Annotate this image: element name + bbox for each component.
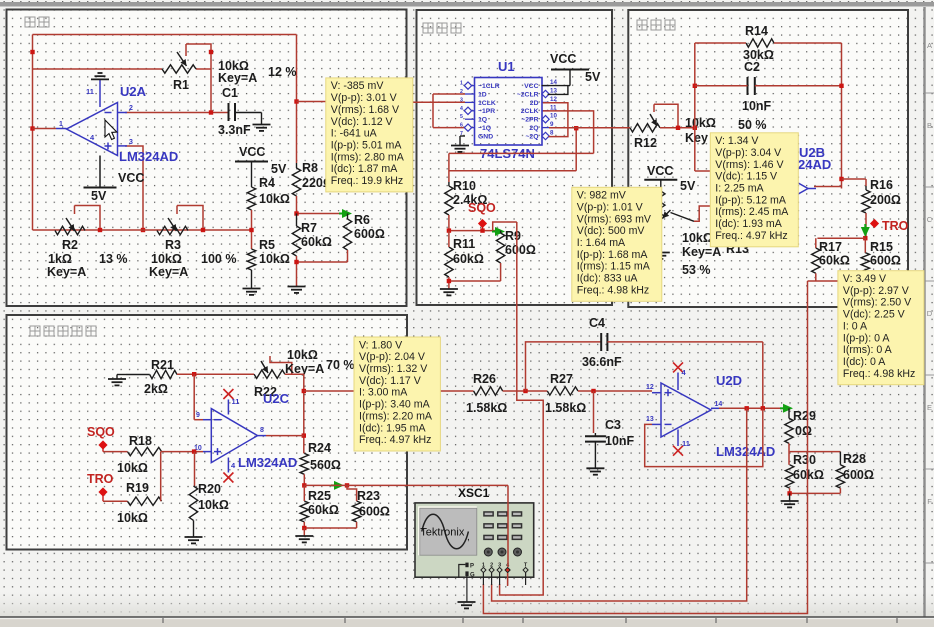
svg-text:R26: R26	[473, 372, 496, 386]
svg-text:V(rms): 693 mV: V(rms): 693 mV	[577, 213, 652, 225]
svg-text:Freq.: 4.98 kHz: Freq.: 4.98 kHz	[577, 284, 649, 296]
svg-text:XSC1: XSC1	[458, 486, 490, 500]
svg-text:1D: 1D	[478, 91, 487, 98]
svg-text:~1Q: ~1Q	[478, 125, 491, 132]
svg-text:560Ω: 560Ω	[310, 458, 341, 472]
svg-text:R28: R28	[843, 452, 866, 466]
svg-text:C4: C4	[589, 316, 605, 330]
svg-text:1.58kΩ: 1.58kΩ	[466, 401, 507, 415]
svg-text:R1: R1	[173, 78, 189, 92]
svg-text:2CLK: 2CLK	[521, 108, 539, 115]
svg-text:10kΩ: 10kΩ	[198, 498, 229, 512]
svg-text:50 %: 50 %	[738, 118, 767, 132]
svg-text:1CLK: 1CLK	[478, 100, 496, 107]
svg-text:Key=A: Key=A	[149, 265, 188, 279]
svg-text:5V: 5V	[585, 70, 601, 84]
svg-text:V(p-p): 1.01 V: V(p-p): 1.01 V	[577, 201, 644, 213]
svg-text:R3: R3	[165, 238, 181, 252]
svg-text:Freq.: 4.97 kHz: Freq.: 4.97 kHz	[715, 230, 787, 242]
svg-text:LM324AD: LM324AD	[119, 149, 178, 164]
svg-text:V(rms): 1.32 V: V(rms): 1.32 V	[359, 363, 428, 375]
svg-text:10: 10	[550, 113, 557, 120]
svg-text:36.6nF: 36.6nF	[582, 355, 622, 369]
svg-text:A: A	[927, 41, 932, 50]
svg-text:~2PR: ~2PR	[521, 117, 538, 124]
svg-text:I(dc): 833 uA: I(dc): 833 uA	[577, 273, 639, 285]
svg-text:10kΩ: 10kΩ	[287, 348, 318, 362]
svg-text:U2C: U2C	[263, 391, 290, 406]
svg-text:0Ω: 0Ω	[795, 424, 812, 438]
svg-text:R16: R16	[870, 178, 893, 192]
svg-text:I: -641 uA: I: -641 uA	[331, 128, 378, 140]
svg-text:I(p-p): 5.12 mA: I(p-p): 5.12 mA	[715, 194, 787, 206]
svg-text:600Ω: 600Ω	[843, 468, 874, 482]
svg-text:C: C	[927, 215, 933, 224]
svg-text:R7: R7	[301, 221, 317, 235]
svg-text:TRO: TRO	[882, 219, 909, 233]
svg-text:10nF: 10nF	[742, 99, 772, 113]
svg-text:V(p-p): 3.04 V: V(p-p): 3.04 V	[715, 147, 782, 159]
svg-text:R29: R29	[793, 409, 816, 423]
svg-text:~1PR: ~1PR	[478, 108, 495, 115]
svg-text:60kΩ: 60kΩ	[308, 503, 339, 517]
svg-text:V(rms): 1.68 V: V(rms): 1.68 V	[331, 104, 400, 116]
svg-text:1: 1	[59, 121, 63, 128]
svg-text:R2: R2	[62, 238, 78, 252]
svg-text:I(dc): 1.95 mA: I(dc): 1.95 mA	[359, 422, 426, 434]
svg-text:I(p-p): 3.40 mA: I(p-p): 3.40 mA	[359, 399, 431, 411]
svg-text:U2A: U2A	[120, 84, 147, 99]
svg-text:Freq.: 4.97 kHz: Freq.: 4.97 kHz	[359, 434, 431, 446]
svg-text:D: D	[927, 309, 933, 318]
svg-text:2: 2	[460, 89, 463, 95]
svg-text:LM324AD: LM324AD	[238, 455, 297, 470]
svg-text:R17: R17	[819, 240, 842, 254]
svg-text:I(p-p): 5.01 mA: I(p-p): 5.01 mA	[331, 139, 403, 151]
svg-text:R27: R27	[550, 372, 573, 386]
svg-text:14: 14	[715, 401, 723, 408]
svg-text:I(dc): 1.93 mA: I(dc): 1.93 mA	[715, 218, 782, 230]
svg-text:V: -385 mV: V: -385 mV	[331, 80, 385, 92]
svg-text:60kΩ: 60kΩ	[793, 468, 824, 482]
svg-text:60kΩ: 60kΩ	[453, 252, 484, 266]
svg-text:I(rms): 0 A: I(rms): 0 A	[843, 344, 893, 356]
svg-text:1: 1	[460, 81, 463, 87]
svg-text:~2Q: ~2Q	[525, 133, 538, 140]
svg-text:3.3nF: 3.3nF	[218, 123, 251, 137]
svg-text:V: 1.34 V: V: 1.34 V	[715, 135, 759, 147]
svg-text:Key: Key	[685, 131, 708, 145]
svg-text:5V: 5V	[91, 189, 107, 203]
svg-text:Freq.: 4.98 kHz: Freq.: 4.98 kHz	[843, 368, 915, 380]
svg-text:8: 8	[550, 130, 554, 137]
svg-text:10kΩ: 10kΩ	[259, 192, 290, 206]
svg-text:600Ω: 600Ω	[505, 243, 536, 257]
svg-text:1Q: 1Q	[478, 117, 487, 124]
svg-text:10nF: 10nF	[605, 434, 635, 448]
svg-text:V(p-p): 2.97 V: V(p-p): 2.97 V	[843, 285, 910, 297]
svg-text:V(p-p): 3.01 V: V(p-p): 3.01 V	[331, 92, 398, 104]
svg-text:R20: R20	[198, 482, 221, 496]
svg-text:5V: 5V	[271, 162, 287, 176]
svg-text:12: 12	[550, 96, 557, 103]
svg-text:I(rms): 2.20 mA: I(rms): 2.20 mA	[359, 410, 433, 422]
svg-text:10kΩ: 10kΩ	[259, 252, 290, 266]
svg-text:2D: 2D	[530, 100, 539, 107]
svg-text:V(dc): 1.17 V: V(dc): 1.17 V	[359, 375, 422, 387]
svg-text:R24: R24	[308, 441, 331, 455]
svg-text:1kΩ: 1kΩ	[48, 252, 72, 266]
svg-text:C1: C1	[222, 86, 238, 100]
svg-text:12 %: 12 %	[268, 65, 297, 79]
svg-text:Key=A: Key=A	[218, 71, 257, 85]
svg-text:9: 9	[196, 412, 200, 419]
svg-text:2: 2	[129, 105, 133, 112]
svg-text:5: 5	[460, 114, 463, 120]
svg-text:V(rms): 2.50 V: V(rms): 2.50 V	[843, 297, 912, 309]
svg-text:2Q: 2Q	[529, 125, 538, 132]
svg-text:I: 0 A: I: 0 A	[843, 320, 868, 332]
svg-text:V: 1.80 V: V: 1.80 V	[359, 339, 403, 351]
svg-text:R8: R8	[302, 161, 318, 175]
svg-text:Key=A: Key=A	[47, 265, 86, 279]
svg-text:SQO: SQO	[468, 201, 496, 215]
svg-text:3: 3	[129, 139, 133, 146]
svg-text:5V: 5V	[680, 179, 696, 193]
svg-text:2kΩ: 2kΩ	[144, 382, 168, 396]
svg-text:600Ω: 600Ω	[354, 227, 385, 241]
svg-text:I(p-p): 1.68 mA: I(p-p): 1.68 mA	[577, 249, 649, 261]
svg-text:R19: R19	[126, 481, 149, 495]
svg-text:R6: R6	[354, 213, 370, 227]
svg-text:10kΩ: 10kΩ	[682, 231, 713, 245]
svg-text:V(dc): 500 mV: V(dc): 500 mV	[577, 225, 646, 237]
svg-text:GND: GND	[478, 133, 493, 140]
svg-text:E: E	[927, 403, 932, 412]
svg-text:13: 13	[646, 416, 654, 423]
svg-text:C3: C3	[605, 418, 621, 432]
svg-text:V: 982 mV: V: 982 mV	[577, 190, 627, 202]
svg-text:U1: U1	[498, 59, 515, 74]
svg-text:100 %: 100 %	[201, 252, 236, 266]
svg-text:24AD: 24AD	[798, 157, 831, 172]
svg-text:R21: R21	[151, 358, 174, 372]
svg-text:,: ,	[467, 532, 470, 543]
svg-text:V(dc): 1.12 V: V(dc): 1.12 V	[331, 116, 394, 128]
svg-text:R10: R10	[453, 179, 476, 193]
svg-text:C2: C2	[744, 60, 760, 74]
svg-text:U2D: U2D	[716, 373, 742, 388]
svg-text:70 %: 70 %	[326, 358, 355, 372]
svg-text:3: 3	[460, 97, 463, 103]
svg-text:V(p-p): 2.04 V: V(p-p): 2.04 V	[359, 351, 426, 363]
svg-text:VCC: VCC	[239, 145, 265, 159]
svg-text:13 %: 13 %	[99, 252, 128, 266]
svg-text:60kΩ: 60kΩ	[819, 254, 850, 268]
svg-text:10kΩ: 10kΩ	[151, 252, 182, 266]
svg-text:I(dc): 1.87 mA: I(dc): 1.87 mA	[331, 163, 398, 175]
svg-text:53 %: 53 %	[682, 263, 711, 277]
svg-text:I(dc): 0 A: I(dc): 0 A	[843, 356, 886, 368]
svg-text:VCC: VCC	[647, 164, 673, 178]
svg-text:13: 13	[550, 88, 557, 95]
svg-text:600Ω: 600Ω	[870, 254, 901, 268]
svg-text:11: 11	[86, 87, 94, 96]
svg-text:VCC: VCC	[118, 171, 144, 185]
svg-text:12: 12	[646, 384, 654, 391]
svg-text:10kΩ: 10kΩ	[117, 511, 148, 525]
svg-text:~1CLR: ~1CLR	[478, 83, 500, 90]
svg-text:11: 11	[232, 397, 240, 406]
svg-text:I(p-p): 0 A: I(p-p): 0 A	[843, 332, 890, 344]
svg-text:R9: R9	[505, 229, 521, 243]
svg-text:6: 6	[460, 123, 463, 129]
svg-text:8: 8	[260, 427, 264, 434]
svg-text:SQO: SQO	[87, 425, 115, 439]
svg-text:200Ω: 200Ω	[870, 193, 901, 207]
svg-text:R12: R12	[634, 136, 657, 150]
svg-text:R15: R15	[870, 240, 893, 254]
svg-text:10kΩ: 10kΩ	[117, 461, 148, 475]
svg-text:600Ω: 600Ω	[359, 505, 390, 519]
svg-text:I(rms): 2.80 mA: I(rms): 2.80 mA	[331, 151, 405, 163]
svg-text:~2CLR: ~2CLR	[517, 91, 539, 98]
svg-text:Tektronix: Tektronix	[420, 527, 465, 539]
svg-text:F: F	[927, 497, 932, 506]
svg-text:R25: R25	[308, 489, 331, 503]
svg-text:V(dc): 1.15 V: V(dc): 1.15 V	[715, 171, 778, 183]
svg-text:I: 3.00 mA: I: 3.00 mA	[359, 387, 408, 399]
svg-text:R4: R4	[259, 176, 275, 190]
svg-text:Freq.: 19.9 kHz: Freq.: 19.9 kHz	[331, 175, 403, 187]
svg-text:LM324AD: LM324AD	[716, 444, 775, 459]
svg-text:VCC: VCC	[550, 52, 576, 66]
svg-text:1.58kΩ: 1.58kΩ	[545, 401, 586, 415]
svg-text:TRO: TRO	[87, 472, 114, 486]
svg-text:I(rms): 1.15 mA: I(rms): 1.15 mA	[577, 261, 651, 273]
svg-text:I: 1.64 mA: I: 1.64 mA	[577, 237, 626, 249]
svg-text:R14: R14	[745, 24, 768, 38]
svg-text:R30: R30	[793, 453, 816, 467]
svg-text:R18: R18	[129, 434, 152, 448]
svg-text:V(dc): 2.25 V: V(dc): 2.25 V	[843, 309, 906, 321]
svg-text:R11: R11	[453, 237, 475, 251]
svg-text:I: 2.25 mA: I: 2.25 mA	[715, 183, 764, 195]
svg-text:R23: R23	[357, 489, 380, 503]
svg-text:V: 3.49 V: V: 3.49 V	[843, 273, 887, 285]
svg-text:60kΩ: 60kΩ	[301, 235, 332, 249]
svg-text:P: P	[470, 564, 474, 570]
svg-text:B: B	[927, 121, 932, 130]
svg-text:V(rms): 1.46 V: V(rms): 1.46 V	[715, 159, 784, 171]
svg-text:11: 11	[682, 439, 690, 448]
svg-text:G: G	[470, 573, 475, 579]
svg-text:I(rms): 2.45 mA: I(rms): 2.45 mA	[715, 206, 789, 218]
svg-text:R5: R5	[259, 238, 275, 252]
svg-text:VCC: VCC	[524, 83, 538, 90]
svg-text:4: 4	[460, 106, 463, 112]
